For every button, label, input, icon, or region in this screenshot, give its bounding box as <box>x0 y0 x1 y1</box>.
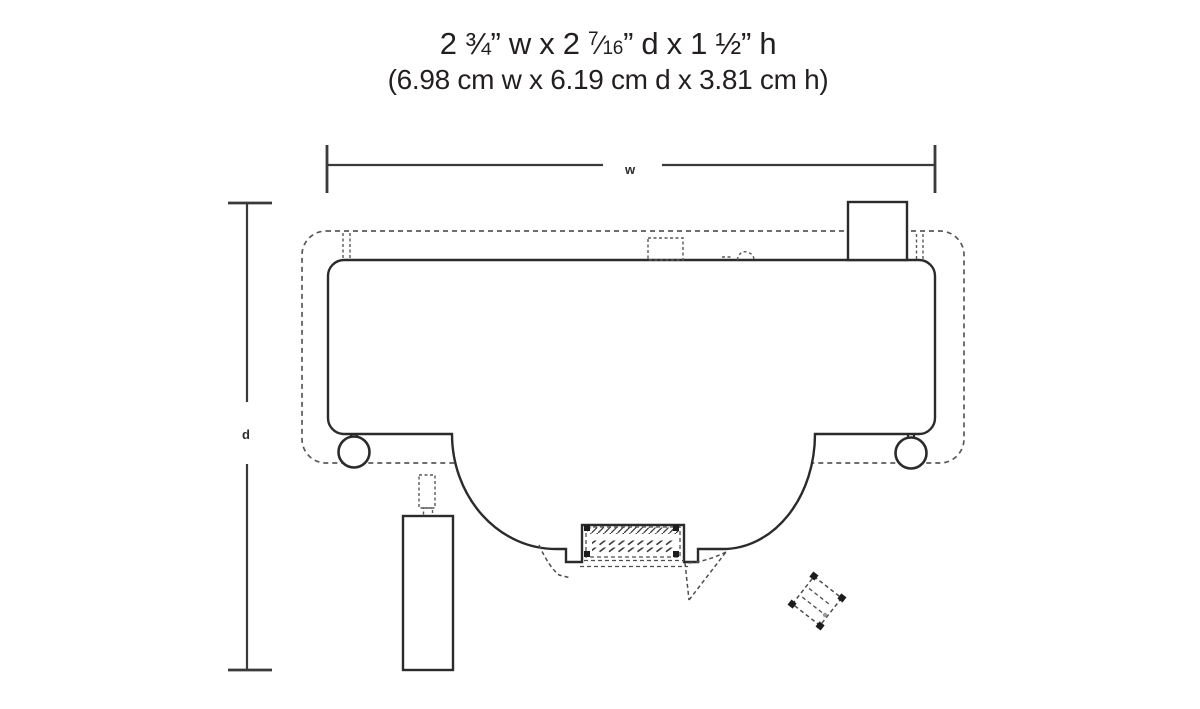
right-column <box>896 434 927 469</box>
cart-dashed-square <box>788 572 847 631</box>
left-column <box>339 434 370 468</box>
loading-dock-rect <box>403 516 453 670</box>
depth-label: d <box>242 427 250 442</box>
entrance-stairs <box>580 525 688 567</box>
rear-vent-dashed-box <box>648 238 683 260</box>
width-dimension-line: w <box>327 145 935 193</box>
dashed-wall-ticks <box>343 233 923 259</box>
chimney-rect <box>848 202 907 260</box>
width-label: w <box>624 162 636 177</box>
dock-dashed-chute <box>419 475 435 516</box>
depth-dimension-line: d <box>228 203 272 670</box>
rear-vent-dashed-squiggle <box>722 252 754 260</box>
cart-center-dot <box>823 613 827 617</box>
footprint-diagram: w d <box>0 0 1200 709</box>
